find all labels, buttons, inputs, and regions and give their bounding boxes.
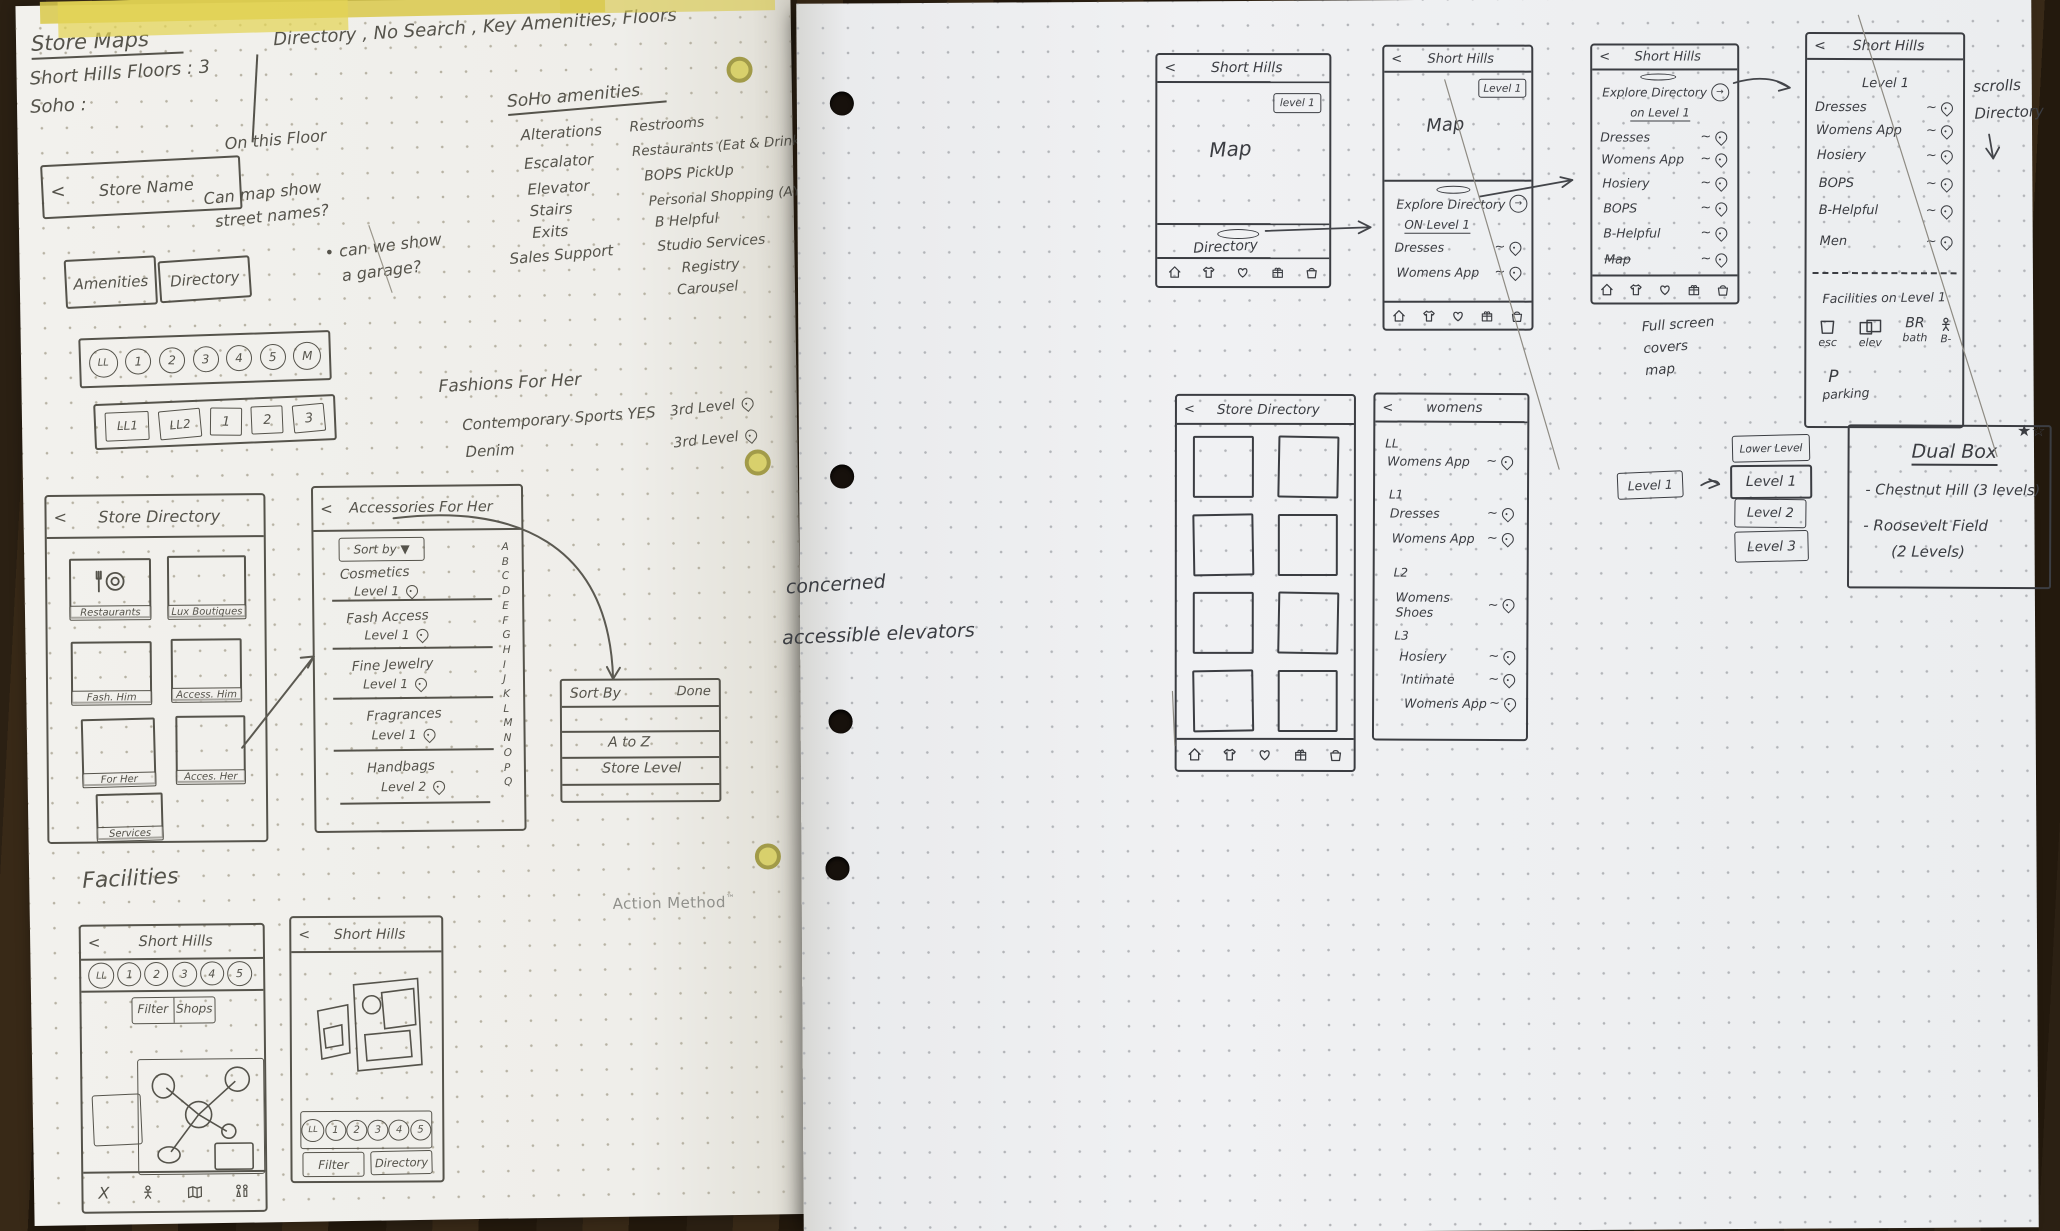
amenity: Escalator (523, 150, 593, 173)
fashions-level2: 3rd Level (673, 427, 758, 452)
amenity: Carousel (677, 278, 739, 298)
margin-note: accessible elevators (782, 619, 975, 649)
directory-card: Services (96, 792, 164, 840)
binder-hole (755, 843, 781, 869)
location-pin-icon (1938, 99, 1955, 116)
location-pin-icon (1507, 264, 1524, 281)
map-region (92, 1093, 143, 1146)
level-pill: 2 (144, 962, 168, 986)
home-icon (1392, 308, 1407, 323)
facilities-label: Facilities (82, 864, 179, 894)
directory-card: Lux Boutiques (167, 555, 247, 618)
back-icon: < (1164, 60, 1176, 76)
map-icon (186, 1183, 203, 1200)
notebook-photo: Store Maps Short Hills Floors : 3 Soho :… (0, 0, 2060, 1231)
level-pill: 5 (410, 1119, 431, 1140)
level-pill: LL (88, 962, 114, 988)
location-pin-icon (739, 395, 756, 412)
bag-icon (1715, 282, 1730, 297)
directory-button: Directory (157, 255, 252, 303)
location-pin-icon (1938, 122, 1955, 139)
level-pill: 1 (125, 348, 152, 375)
amenities-title: SoHo amenities (506, 78, 667, 116)
location-pin-icon (1938, 147, 1955, 164)
filter-shops-buttons: Filter Shops (131, 996, 215, 1024)
level-pill: 1 (325, 1119, 346, 1140)
level-header: Level 1 (1862, 76, 1909, 91)
location-pin-icon (1500, 597, 1517, 614)
directory-card: Access. Him (171, 638, 243, 701)
restroom-icon (233, 1183, 250, 1200)
bag-icon (1304, 265, 1319, 280)
list-item-level: Level 1 (354, 583, 418, 599)
grid-card (1193, 592, 1254, 654)
fullscreen-note: Full screen covers map (1641, 311, 1719, 382)
location-pin-icon (1499, 453, 1516, 470)
level-selector: LL 1 2 3 4 5 (300, 1110, 432, 1149)
facilities-header: Facilities on Level 1 (1822, 289, 1946, 306)
level-pill: 4 (200, 961, 224, 985)
notebook-brand: Action Method™ (612, 893, 735, 913)
directory-card: Restaurants (69, 558, 152, 619)
amenities-button: Amenities (64, 255, 158, 309)
amenity: Elevator (527, 177, 590, 199)
location-pin-icon (1502, 695, 1519, 712)
level-selector-round: LL 1 2 3 4 5 M (78, 330, 332, 388)
facility-esc: esc (1818, 318, 1837, 349)
back-icon: < (88, 934, 101, 952)
level-pill: 2 (159, 347, 185, 373)
level-pill: 4 (225, 344, 253, 372)
amenity: Restaurants (Eat & Drink) (631, 132, 805, 160)
directory-button: Directory (370, 1150, 433, 1175)
location-pin-icon (1713, 174, 1730, 191)
close-icon: X (98, 1183, 109, 1202)
level-section: L1 (1389, 488, 1403, 502)
location-pin-icon (1501, 671, 1518, 688)
wireframe-facilities-map-2: < Short Hills LL 1 2 3 4 5 (289, 915, 444, 1183)
shirt-icon (1421, 308, 1436, 323)
on-level-label: ON Level 1 (1404, 218, 1470, 234)
location-pin-icon (1938, 233, 1955, 250)
list-item-level: Level 1 (363, 676, 427, 692)
directory-label: Directory (1193, 237, 1259, 256)
card-grid (1193, 436, 1338, 732)
level-pill: LL1 (105, 410, 150, 441)
home-icon (1167, 265, 1182, 280)
level-pill: 1 (117, 962, 141, 986)
grid-card (1277, 670, 1338, 732)
heart-icon (1657, 282, 1672, 297)
dual-box-note: ★☆ Dual Box - Chestnut Hill (3 levels) -… (1847, 424, 2052, 589)
section-divider (1813, 272, 1957, 274)
map-placeholder: Map (1209, 136, 1252, 162)
level-section: L2 (1394, 566, 1408, 580)
list-item-level: Level 1 (371, 727, 435, 743)
location-pin-icon (1713, 128, 1730, 145)
location-pin-icon (1938, 175, 1955, 192)
escalator-square-icon (1819, 318, 1837, 336)
level-pill: LL2 (157, 407, 202, 440)
grid-card (1193, 436, 1254, 498)
store-name-bar: < Store Name (40, 155, 242, 219)
level-pill: 2 (346, 1119, 367, 1140)
node-map-sketch (138, 1059, 264, 1174)
heart-icon (1236, 265, 1251, 280)
level-pill: 4 (389, 1119, 410, 1140)
level-option: Lower Level (1732, 434, 1811, 463)
soho-note: Soho : (30, 94, 88, 118)
amenity: BOPS PickUp (644, 163, 735, 185)
heart-icon (1450, 308, 1465, 323)
wireframe-store-directory: < Store Directory Restaurants Lux Boutiq… (44, 493, 268, 844)
amenity: Exits (532, 222, 569, 242)
sort-option: Store Level (602, 760, 681, 776)
gift-icon (1293, 747, 1309, 763)
grid-card (1277, 591, 1339, 654)
note-garage-q2: a garage? (341, 257, 422, 285)
shirt-icon (1222, 747, 1238, 763)
pull-handle (1640, 73, 1676, 80)
explore-directory: Explore Directory → (1602, 83, 1729, 101)
parking-p: P (1828, 367, 1838, 387)
location-pin-icon (1713, 250, 1730, 267)
location-pin-icon (1713, 224, 1730, 241)
grid-card (1277, 514, 1338, 576)
level-pill: LL (88, 348, 118, 378)
parking-label: parking (1822, 385, 1870, 402)
amenity: Studio Services (657, 232, 766, 255)
wireframe-womens-list: < womens LL Womens App~ L1 Dresses~ Wome… (1372, 392, 1530, 741)
home-icon (1186, 747, 1202, 763)
level-pill: 1 (210, 407, 242, 435)
level-option: Level 1 (1730, 465, 1812, 500)
note-on-this-floor: On this Floor (224, 126, 327, 154)
amenity: Registry (681, 256, 740, 276)
level-pill: 3 (192, 346, 219, 373)
amenity: Sales Support (509, 241, 614, 268)
wireframe-map-screen: < Short Hills level 1 Map Directory (1155, 53, 1331, 288)
elevator-double-square-icon (1856, 318, 1884, 336)
right-page: concerned accessible elevators < Short H… (796, 0, 2038, 1231)
grid-card (1192, 513, 1254, 576)
fashions-row1: Contemporary Sports YES (462, 403, 657, 434)
wireframe-explore-list: < Short Hills Explore Directory → on Lev… (1590, 43, 1739, 304)
circle-arrow-icon: → (1509, 195, 1527, 213)
wireframe-facilities-map: < Short Hills LL 1 2 3 4 5 Filter Shops (79, 923, 268, 1214)
facility-bath: BR bath (1902, 315, 1927, 344)
scrolls-note: scrolls Directory (1973, 71, 2045, 128)
level-badge: level 1 (1273, 93, 1321, 113)
location-pin-icon (1499, 505, 1516, 522)
level-section: LL (1385, 437, 1398, 451)
location-pin-icon (404, 582, 421, 599)
gift-icon (1686, 282, 1701, 297)
wireframe-map-explore: < Short Hills Level 1 Map Explore Direct… (1382, 45, 1533, 331)
fashions-level1: 3rd Level (669, 395, 754, 420)
level-pill: 3 (291, 403, 325, 434)
back-icon: < (298, 927, 310, 943)
pull-handle (1436, 186, 1470, 194)
amenity: Personal Shopping (AYS) (648, 182, 815, 209)
list-item: Fragrances (366, 705, 442, 724)
binder-hole (830, 464, 854, 488)
level-trigger: Level 1 (1617, 470, 1684, 500)
wireframe-accessories-for-her: < Accessories For Her Sort by ▼ Cosmetic… (311, 484, 527, 833)
directory-card: For Her (81, 717, 157, 786)
divider-stroke (252, 54, 259, 142)
restroom-text-icon: BR (1902, 315, 1927, 331)
person-icon (139, 1183, 156, 1200)
level-pill: 5 (259, 344, 286, 371)
directory-card: Fash. Him (71, 641, 153, 704)
bag-icon (1328, 747, 1344, 763)
fork-and-plate-icon (93, 568, 127, 594)
store-name-label: Store Name (65, 172, 228, 202)
grid-card (1277, 435, 1339, 498)
level-option: Level 2 (1734, 498, 1806, 528)
back-icon: < (1814, 38, 1826, 54)
location-pin-icon (414, 626, 431, 643)
level-pill: LL (302, 1118, 325, 1141)
binder-hole (745, 449, 771, 475)
amenity: Alterations (520, 121, 602, 144)
heart-icon (1257, 747, 1273, 763)
shirt-icon (1201, 265, 1216, 280)
circle-arrow-icon: → (1711, 83, 1729, 101)
gift-icon (1480, 308, 1495, 323)
list-item: Handbags (367, 758, 436, 777)
floors-note: Short Hills Floors : 3 (29, 56, 211, 89)
location-pin-icon (1501, 648, 1518, 665)
location-pin-icon (413, 675, 430, 692)
sort-option: A to Z (608, 734, 650, 750)
fashions-title: Fashions For Her (438, 370, 582, 397)
level-badge: Level 1 (1478, 79, 1526, 98)
map-sketch (309, 972, 425, 1093)
location-pin-icon (1713, 150, 1730, 167)
list-item: Fine Jewelry (352, 655, 434, 675)
amenity: B Helpful (654, 210, 719, 230)
location-pin-icon (1499, 530, 1516, 547)
on-level-label: on Level 1 (1630, 105, 1690, 121)
list-item-level: Level 2 (381, 779, 445, 795)
note-garage-q1: • can we show (324, 229, 443, 262)
wireframe-store-directory-grid: < Store Directory (1175, 394, 1356, 772)
location-pin-icon (1938, 202, 1955, 219)
binder-hole (825, 856, 849, 880)
level-selector-square: LL1 LL2 1 2 3 (93, 394, 337, 450)
location-pin-icon (431, 778, 448, 795)
shirt-icon (1628, 282, 1643, 297)
location-pin-icon (1507, 239, 1524, 256)
sort-by-button: Sort by ▼ (338, 537, 424, 562)
back-icon: < (1391, 51, 1402, 66)
grid-card (1192, 669, 1254, 732)
back-icon: < (1382, 400, 1393, 415)
list-item: Womens App ~ (1396, 265, 1521, 280)
binder-hole (726, 57, 752, 83)
dual-box-title: Dual Box (1912, 441, 1998, 466)
map-placeholder: Map (1426, 114, 1465, 137)
back-icon: < (1599, 50, 1610, 65)
facility-elev: elev (1856, 318, 1884, 349)
gift-icon (1270, 265, 1285, 280)
home-icon (1599, 282, 1614, 297)
level-pill: 3 (367, 1119, 388, 1140)
amenity: Stairs (529, 199, 573, 220)
list-item: Cosmetics (340, 564, 410, 583)
back-icon: < (53, 507, 67, 526)
location-pin-icon (421, 726, 438, 743)
level-option: Level 3 (1734, 530, 1809, 563)
fashions-row2: Denim (465, 441, 515, 461)
list-item-level: Level 1 (364, 627, 428, 643)
explore-directory: Explore Directory → (1396, 195, 1527, 213)
sort-dialog-title: Sort By (570, 686, 621, 702)
person-icon (1937, 316, 1954, 333)
alpha-index: A B C D E F G H I J K L M N O P Q (502, 540, 514, 790)
level-pill: M (293, 341, 322, 370)
location-pin-icon (1713, 199, 1730, 216)
location-pin-icon (743, 427, 760, 444)
level-section: L3 (1394, 629, 1408, 643)
list-item: Dresses ~ (1394, 240, 1521, 255)
facility-bhelpful: B- (1937, 316, 1954, 345)
filter-button: Filter (302, 1152, 364, 1177)
margin-note: concerned (785, 571, 886, 599)
bag-icon (1509, 308, 1524, 323)
back-icon: < (50, 181, 66, 203)
level-pill: 3 (172, 962, 197, 987)
map-canvas (137, 1058, 265, 1175)
wireframe-directory-scroll: < Short Hills Level 1 Dresses~ Womens Ap… (1804, 32, 1965, 428)
directory-card: Acces. Her (175, 715, 246, 783)
binder-hole (830, 91, 854, 115)
back-icon: < (320, 500, 333, 518)
amenity: Restrooms (629, 114, 705, 135)
level-pill: 2 (251, 405, 284, 434)
binder-hole (829, 709, 853, 733)
level-pill: 5 (227, 961, 252, 986)
sort-dialog: Sort By Done A to Z Store Level (560, 678, 722, 803)
done-button: Done (677, 684, 711, 699)
list-item: Fash Access (346, 607, 429, 627)
left-page: Store Maps Short Hills Floors : 3 Soho :… (15, 0, 809, 1226)
stars-icon: ★☆ (2017, 421, 2046, 440)
back-icon: < (1184, 402, 1195, 417)
